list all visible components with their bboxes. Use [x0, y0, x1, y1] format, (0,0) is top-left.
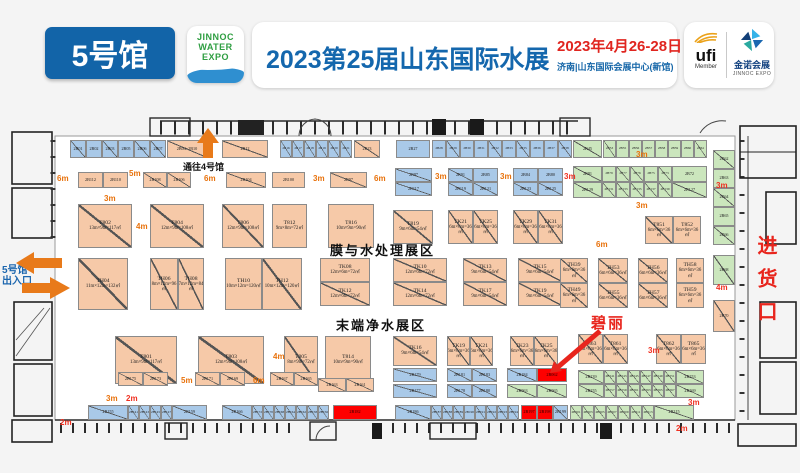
booth-TH39: TH396m×6m=36㎡	[560, 258, 588, 283]
booth-2B179: 2B179	[393, 368, 437, 382]
booth-2B117: 2B117	[395, 182, 432, 196]
aisle-width-label: 2m	[60, 418, 72, 427]
booth-2B17: 2B17	[292, 140, 304, 158]
booth-2B259: 2B259	[616, 384, 628, 398]
booth-2B12: 2B12	[222, 140, 268, 158]
booth-2B170: 2B170	[263, 405, 274, 420]
booth-2B171: 2B171	[195, 372, 220, 386]
booth-2B01: 2B01	[70, 140, 86, 158]
booth-2B91: 2B91	[448, 168, 473, 182]
booth-TH49: TH496m×6m=36㎡	[560, 283, 588, 308]
booth-TK23: TK236m×6m=36㎡	[510, 336, 534, 366]
booth-2B81: 2B81	[573, 166, 602, 182]
booth-2B175: 2B175	[118, 372, 143, 386]
aisle-width-label: 3m	[106, 394, 118, 403]
booth-2B85: 2B85	[473, 168, 498, 182]
booth-2B197: 2B197	[521, 405, 537, 420]
booth-TH53: TH536m×6m=36㎡	[598, 258, 628, 283]
booth-2B162: 2B162	[296, 405, 307, 420]
booth-2B065: 2B065	[537, 384, 567, 398]
booth-2B119: 2B119	[448, 182, 473, 196]
booth-TK08: TK0812m×6m=72㎡	[320, 258, 370, 282]
booth-2B19: 2B19	[316, 140, 328, 158]
floor-plan: 2B012B022B032B052B062B072B04~2B102B122B1…	[0, 100, 800, 473]
booth-TH56: TH566m×6m=36㎡	[638, 258, 668, 283]
booth-2B191: 2B191	[475, 405, 486, 420]
ufi-logo: ufi Member	[691, 30, 721, 70]
booth-TK10: TK1012m×6m=72㎡	[393, 258, 447, 282]
ufi-text: ufi	[691, 48, 721, 64]
booth-T865: T8656m×6m=36㎡	[681, 334, 706, 364]
booth-2B07: 2B07	[150, 140, 166, 158]
aisle-width-label: 3m	[313, 174, 325, 183]
booth-2B35: 2B35	[516, 140, 530, 158]
booth-2B190: 2B190	[464, 405, 475, 420]
aisle-width-label: 3m	[648, 346, 660, 355]
booth-2B110: 2B110	[103, 172, 128, 188]
booth-2B45: 2B45	[573, 140, 602, 158]
booth-2B84: 2B84	[513, 168, 538, 182]
booth-2B66: 2B66	[713, 226, 735, 245]
booth-2B64: 2B64	[713, 188, 735, 207]
aisle-width-label: 4m	[273, 352, 285, 361]
booth-2B28: 2B28	[432, 140, 446, 158]
booth-2B211: 2B211	[630, 405, 642, 420]
booth-2B16: 2B16	[280, 140, 292, 158]
booth-T863: T8636m×6m=36㎡	[578, 334, 603, 364]
booth-2B129: 2B129	[573, 182, 602, 198]
booth-2B155: 2B155	[88, 405, 128, 420]
booth-2B108: 2B108	[143, 172, 167, 188]
booth-TK19: TK199m×6m=54㎡	[518, 282, 562, 306]
booth-2B53: 2B53	[603, 140, 616, 158]
booth-2B161: 2B161	[346, 378, 374, 392]
booth-2B209: 2B209	[618, 405, 630, 420]
logo-line2: WATER	[187, 42, 244, 52]
booth-2B169: 2B169	[220, 372, 245, 386]
booth-T804: T80412m×9m=108㎡	[150, 204, 204, 248]
booth-2B68: 2B68	[713, 255, 735, 285]
booth-2B33: 2B33	[502, 140, 516, 158]
booth-2B177: 2B177	[393, 384, 437, 398]
booth-2B77: 2B77	[616, 166, 630, 182]
booth-2B165: 2B165	[294, 372, 318, 386]
booth-2B255: 2B255	[578, 384, 604, 398]
aisle-width-label: 2m	[126, 394, 138, 403]
booth-TH10: TH1010m×12m=120㎡	[225, 258, 262, 310]
zone-terminal-label: 末端净水展区	[336, 315, 426, 334]
booth-2B58: 2B58	[655, 140, 668, 158]
booth-TK15: TK159m×6m=54㎡	[518, 258, 562, 282]
booth-T862: T8626m×6m=36㎡	[656, 334, 681, 364]
booth-2B245: 2B245	[628, 370, 640, 384]
booth-2B31: 2B31	[474, 140, 488, 158]
booth-2B168: 2B168	[274, 405, 285, 420]
aisle-width-label: 6m	[57, 174, 69, 183]
booth-2B30: 2B30	[460, 140, 474, 158]
booth-2B135: 2B135	[630, 182, 644, 198]
booth-TK17: TK179m×6m=54㎡	[463, 282, 507, 306]
jinnoc-cn-text: 金诺会展	[731, 58, 773, 71]
booth-2B147: 2B147	[161, 405, 172, 420]
booth-2B29: 2B29	[446, 140, 460, 158]
booth-T814: T81410m×9m=90㎡	[325, 336, 371, 384]
booth-2B131: 2B131	[602, 182, 616, 198]
booth-2B123: 2B123	[513, 182, 538, 196]
booth-TK19: TK196m×6m=36㎡	[447, 336, 470, 366]
booth-2B172: 2B172	[252, 405, 263, 420]
booth-2B253: 2B253	[676, 370, 704, 384]
booth-2B76: 2B76	[630, 166, 644, 182]
booth-2B36: 2B36	[530, 140, 544, 158]
booth-2B79: 2B79	[602, 166, 616, 182]
booth-TK13: TK139m×6m=54㎡	[463, 258, 507, 282]
ufi-member-text: Member	[691, 64, 721, 70]
booth-TH55: TH556m×6m=36㎡	[598, 283, 628, 308]
aisle-width-label: 3m	[636, 150, 648, 159]
aisle-width-label: 5m	[129, 169, 141, 178]
booth-2B80: 2B80	[538, 168, 563, 182]
title-banner: 2023第25届山东国际水展 2023年4月26-28日 济南|山东国际会展中心…	[252, 22, 677, 88]
booth-T806: T80612m×9m=108㎡	[222, 204, 264, 248]
booth-2B61: 2B61	[694, 140, 707, 158]
goods-gate-label: 进货口	[751, 235, 780, 334]
booth-2B267: 2B267	[664, 384, 676, 398]
aisle-width-label: 4m	[716, 283, 728, 292]
booth-2B159: 2B159	[172, 405, 207, 420]
logo-line3: EXPO	[187, 52, 244, 62]
booth-2B164: 2B164	[285, 405, 296, 420]
booth-TK25: TK256m×6m=36㎡	[534, 336, 558, 366]
aisle-width-label: 6m	[374, 174, 386, 183]
booth-T819: T8199m×6m=54㎡	[393, 210, 433, 244]
logo-line1: JINNOC	[187, 32, 244, 42]
booth-TH08: TH087m×12m=84㎡	[178, 258, 204, 310]
booth-2B203: 2B203	[582, 405, 594, 420]
hall-badge: 5号馆	[45, 27, 175, 79]
booth-2B189: 2B189	[453, 405, 464, 420]
booth-2B27: 2B27	[396, 140, 430, 158]
booth-2B75: 2B75	[644, 166, 658, 182]
booth-TK29: TK296m×6m=36㎡	[513, 210, 538, 244]
booth-2B158: 2B158	[307, 405, 318, 420]
booth-2B65: 2B65	[713, 207, 735, 226]
booth-2B183: 2B183	[472, 368, 497, 382]
booth-2B133: 2B133	[616, 182, 630, 198]
booth-2B186: 2B186	[395, 405, 431, 420]
booth-2B72: 2B72	[672, 166, 707, 182]
booth-2B263: 2B263	[640, 384, 652, 398]
aisle-width-label: 3m	[688, 398, 700, 407]
aisle-width-label: 3m	[564, 172, 576, 181]
expo-date: 2023年4月26-28日	[557, 35, 675, 56]
booth-2B188: 2B188	[442, 405, 453, 420]
booth-2B121: 2B121	[473, 182, 498, 196]
booth-2B04~2B10: 2B04~2B10	[167, 140, 207, 158]
booth-2B194: 2B194	[508, 405, 519, 420]
booth-2B193: 2B193	[497, 405, 508, 420]
booth-TH12: TH1210m×12m=120㎡	[262, 258, 302, 310]
booth-2B60: 2B60	[681, 140, 694, 158]
booth-2B163: 2B163	[318, 378, 346, 392]
booth-2B187: 2B187	[431, 405, 442, 420]
booth-2B182: 2B182	[333, 405, 377, 420]
booth-2B180: 2B180	[472, 384, 497, 398]
expo-title: 2023第25届山东国际水展	[266, 40, 566, 76]
booth-2B20: 2B20	[328, 140, 340, 158]
booth-2B03: 2B03	[102, 140, 118, 158]
booth-2B127: 2B127	[672, 182, 707, 198]
booth-2B55: 2B55	[616, 140, 629, 158]
booth-2B106: 2B106	[167, 172, 191, 188]
aisle-width-label: 3m	[716, 181, 728, 190]
booth-T861: T8616m×6m=36㎡	[603, 334, 628, 364]
booth-2B062: 2B062	[537, 368, 567, 382]
booth-2B213: 2B213	[642, 405, 654, 420]
to-hall4-label: 通往4号馆	[183, 160, 224, 173]
booth-TK12: TK1212m×6m=72㎡	[320, 282, 370, 306]
booth-2B265: 2B265	[652, 384, 664, 398]
aisle-width-label: 3m	[500, 172, 512, 181]
booth-2B215: 2B215	[654, 405, 694, 420]
booth-2B62: 2B62	[713, 150, 735, 169]
booth-2B18: 2B18	[304, 140, 316, 158]
booth-2B125: 2B125	[538, 182, 563, 196]
booth-T802: T80213m×9m=117㎡	[78, 204, 132, 248]
booth-TK25: TK256m×6m=36㎡	[473, 210, 498, 244]
booth-2B205: 2B205	[594, 405, 606, 420]
booth-2B21: 2B21	[340, 140, 352, 158]
booth-2B38: 2B38	[558, 140, 572, 158]
booth-2B32: 2B32	[488, 140, 502, 158]
jinnoc-en-text: JINNOC EXPO	[731, 71, 773, 77]
booth-2B145: 2B145	[150, 405, 161, 420]
booth-2B139: 2B139	[658, 182, 672, 198]
booth-2B23: 2B23	[354, 140, 380, 158]
booth-TH58: TH586m×6m=36㎡	[676, 258, 704, 283]
booth-2B05: 2B05	[118, 140, 134, 158]
aisle-width-label: 3m	[636, 201, 648, 210]
booth-2B59: 2B59	[668, 140, 681, 158]
divider	[726, 32, 727, 78]
booth-2B239: 2B239	[578, 370, 604, 384]
booth-2B173: 2B173	[143, 372, 168, 386]
booth-TH04: TH0411m×12m=132㎡	[78, 258, 128, 310]
booth-TK21: TK216m×6m=36㎡	[448, 210, 473, 244]
aisle-width-label: 6m	[204, 174, 216, 183]
booth-2B73: 2B73	[658, 166, 672, 182]
logos-card: ufi Member 金诺会展 JINNOC EXPO	[684, 22, 774, 88]
booth-2B178: 2B178	[447, 384, 472, 398]
booth-TK14: TK1412m×6m=72㎡	[393, 282, 447, 306]
wave-icon	[187, 68, 244, 83]
aisle-width-label: 3m	[104, 194, 116, 203]
booth-2B261: 2B261	[628, 384, 640, 398]
booth-2B192: 2B192	[486, 405, 497, 420]
booth-2B166: 2B166	[222, 405, 252, 420]
aisle-width-label: 6m	[596, 240, 608, 249]
jinnoc-star-icon	[740, 28, 764, 52]
booth-2B06: 2B06	[134, 140, 150, 158]
jinnoc-logo: 金诺会展 JINNOC EXPO	[731, 28, 773, 77]
booth-TH06: TH068m×12m=96㎡	[150, 258, 178, 310]
expo-venue: 济南|山东国际会展中心(新馆)	[557, 60, 675, 73]
booth-2B87: 2B87	[395, 168, 432, 182]
booth-2B37: 2B37	[544, 140, 558, 158]
booth-2B269: 2B269	[676, 384, 704, 398]
aisle-width-label: 5m	[181, 376, 193, 385]
booth-T851: T8516m×6m=36㎡	[645, 216, 673, 244]
booth-2B199: 2B199	[553, 405, 568, 420]
booth-2B207: 2B207	[606, 405, 618, 420]
booth-2B241: 2B241	[604, 370, 616, 384]
booth-2B251: 2B251	[664, 370, 676, 384]
booth-2B257: 2B257	[604, 384, 616, 398]
booth-T812: T8129m×8m=72㎡	[272, 204, 307, 248]
aisle-width-label: 3m	[435, 172, 447, 181]
booth-TK21: TK216m×6m=36㎡	[470, 336, 493, 366]
booth-2B247: 2B247	[640, 370, 652, 384]
booth-TH59: TH596m×6m=36㎡	[676, 283, 704, 308]
aisle-width-label: 4m	[136, 222, 148, 231]
water-expo-logo: JINNOC WATER EXPO	[187, 26, 244, 83]
aisle-width-label: 6m	[253, 376, 265, 385]
booth-2B249: 2B249	[652, 370, 664, 384]
booth-TK16: TK169m×6m=54㎡	[393, 336, 437, 366]
booth-2B201: 2B201	[570, 405, 582, 420]
hall-entrance-label: 5号馆 出入口	[2, 265, 32, 287]
booth-2B198: 2B198	[537, 405, 553, 420]
booth-2B167: 2B167	[270, 372, 294, 386]
booth-2B063: 2B063	[507, 384, 537, 398]
zone-membrane-label: 膜与水处理展区	[330, 240, 435, 259]
booth-TK31: TK316m×6m=36㎡	[538, 210, 563, 244]
booth-2B243: 2B243	[616, 370, 628, 384]
floor-plan-poster: 5号馆 JINNOC WATER EXPO 2023第25届山东国际水展 202…	[0, 0, 800, 473]
booth-TH57: TH576m×6m=36㎡	[638, 283, 668, 308]
booth-2B137: 2B137	[644, 182, 658, 198]
booth-2B70: 2B70	[713, 300, 735, 332]
booth-2B156: 2B156	[318, 405, 329, 420]
booth-2B141: 2B141	[128, 405, 139, 420]
booth-2B97: 2B97	[330, 172, 367, 188]
booth-2B184: 2B184	[507, 368, 537, 382]
booth-2B112: 2B112	[78, 172, 103, 188]
booth-2B181: 2B181	[447, 368, 472, 382]
ufi-fan-icon	[691, 31, 721, 43]
booth-T852: T8526m×6m=36㎡	[673, 216, 701, 244]
booth-2B104: 2B104	[226, 172, 266, 188]
booth-2B143: 2B143	[139, 405, 150, 420]
booth-2B100: 2B100	[272, 172, 305, 188]
aisle-width-label: 2m	[676, 424, 688, 433]
brand-callout-label: 碧丽	[591, 312, 625, 333]
booth-2B02: 2B02	[86, 140, 102, 158]
